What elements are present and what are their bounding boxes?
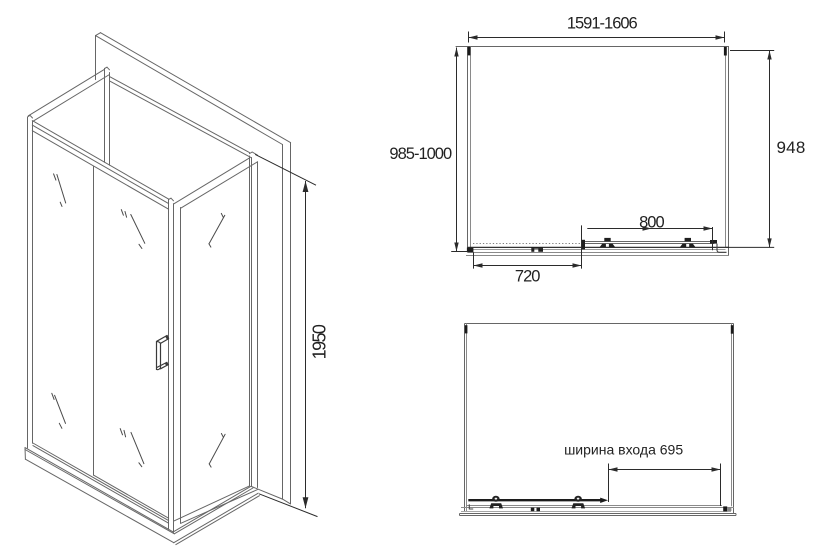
svg-text:ширина входа 695: ширина входа 695: [564, 442, 683, 458]
svg-text:948: 948: [777, 138, 806, 157]
svg-text:1591-1606: 1591-1606: [567, 15, 638, 33]
svg-text:720: 720: [515, 268, 540, 286]
svg-text:985-1000: 985-1000: [389, 145, 452, 163]
svg-text:1950: 1950: [309, 324, 329, 359]
svg-text:800: 800: [639, 213, 664, 231]
